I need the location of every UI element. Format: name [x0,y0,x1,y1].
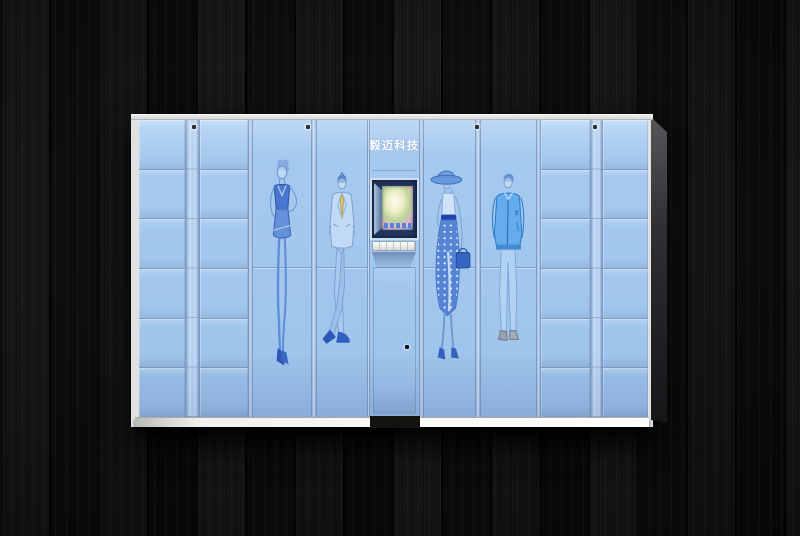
locker-column-small-left-1 [139,120,185,417]
man-in-jacket-art [484,160,534,374]
lock-icon [405,345,409,349]
locker-door [541,120,590,170]
brand-label: 毅迈科技 [370,137,420,153]
locker-door-woman-hat [424,120,475,417]
locker-column-small-left-2 [200,120,248,417]
screen-side-wall [374,183,382,235]
small-locker-cells [603,120,648,417]
locker-door [139,219,185,269]
locker-door [200,170,248,220]
locker-door [603,170,648,220]
console-under-shadow [372,252,416,268]
locker-door-woman-dress [253,120,311,417]
locker-door [139,319,185,369]
parcel-locker-cabinet: 毅迈科技 [131,114,653,427]
locker-face: 毅迈科技 [139,120,648,417]
locker-door [139,368,185,417]
lock-icon [306,125,310,129]
console-door [373,267,416,414]
screen-display [382,186,413,230]
locker-door [603,269,648,319]
lock-icon [475,125,479,129]
small-locker-cells [541,120,590,417]
column-divider [185,120,200,417]
locker-door [603,219,648,269]
column-divider [590,120,603,417]
cabinet-base [135,417,649,427]
locker-door [603,120,648,170]
locker-door [200,120,248,170]
locker-door [139,170,185,220]
locker-door [200,368,248,417]
base-kick-notch [370,416,420,428]
cabinet-side-panel [651,117,667,423]
locker-door [200,219,248,269]
locker-door [603,319,648,369]
locker-door [541,269,590,319]
lock-icon [593,125,597,129]
locker-door [603,368,648,417]
locker-column-small-right-2 [603,120,648,417]
small-locker-cells [139,120,185,417]
locker-door [200,319,248,369]
keypad [372,241,416,251]
woman-in-dress-art [254,156,310,378]
woman-with-hat-art [424,158,475,376]
lock-icon [192,125,196,129]
man-in-suit-art [318,160,366,372]
small-locker-cells [200,120,248,417]
locker-column-small-right-1 [541,120,590,417]
locker-door [541,368,590,417]
locker-door [541,219,590,269]
kiosk-screen [370,178,419,240]
locker-door [139,120,185,170]
locker-door [200,269,248,319]
console-hairline [372,170,417,171]
locker-door [541,319,590,369]
kiosk-console-column: 毅迈科技 [370,120,419,417]
locker-door [139,269,185,319]
wood-wall-background: 毅迈科技 [0,0,800,536]
locker-door-man-jacket [481,120,536,417]
locker-door [541,170,590,220]
locker-door-man-suit [317,120,367,417]
